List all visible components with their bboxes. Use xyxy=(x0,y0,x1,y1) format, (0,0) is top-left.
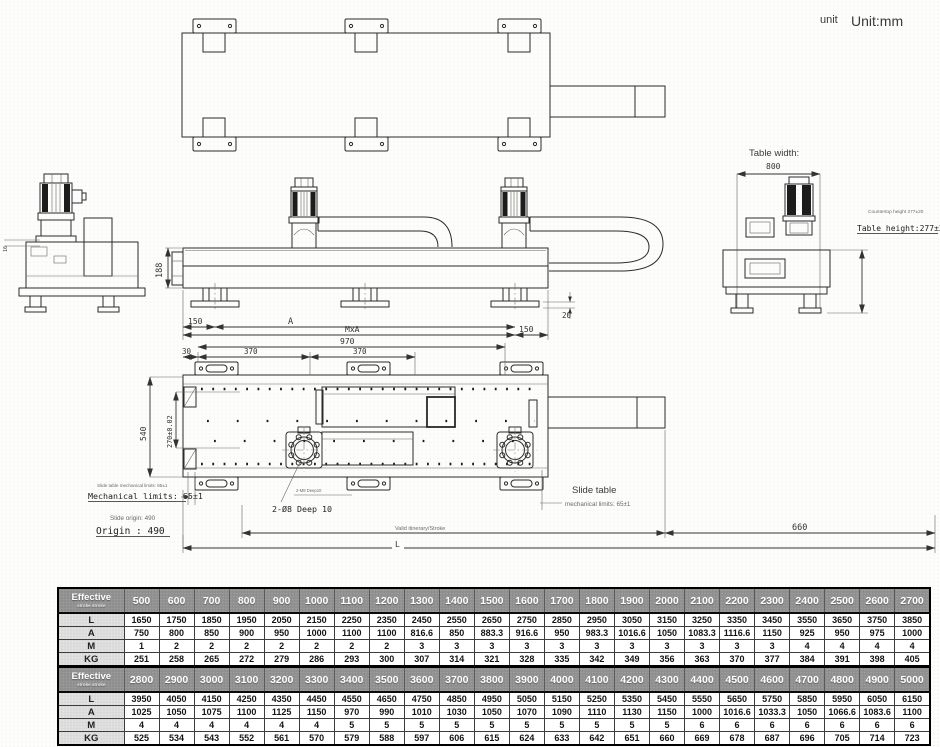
spec-cell: 370 xyxy=(720,653,755,667)
spec-cell: 405 xyxy=(895,653,930,667)
spec-cell: 615 xyxy=(474,732,509,746)
spec-cell: 588 xyxy=(369,732,404,746)
spec-cell: 5 xyxy=(369,719,404,732)
spec-cell: 4750 xyxy=(404,692,439,706)
spec-cell: 2550 xyxy=(439,613,474,627)
spec-cell: 5250 xyxy=(579,692,614,706)
table-width-title: Table width: xyxy=(749,148,799,159)
spec-cell: 5 xyxy=(509,719,544,732)
spec-cell: 1850 xyxy=(194,613,229,627)
spec-cell: 398 xyxy=(860,653,895,667)
stroke-column-header: 3500 xyxy=(369,667,404,692)
spec-cell: 4 xyxy=(264,719,299,732)
spec-cell: 6 xyxy=(895,719,930,732)
spec-cell: 272 xyxy=(229,653,264,667)
stroke-column-header: 1100 xyxy=(334,588,369,613)
spec-cell: 5450 xyxy=(649,692,684,706)
dim-16: 16 xyxy=(3,246,9,252)
spec-cell: 363 xyxy=(685,653,720,667)
stroke-column-header: 4200 xyxy=(614,667,649,692)
spec-cell: 1050 xyxy=(474,706,509,719)
spec-cell: 1100 xyxy=(895,706,930,719)
spec-cell: 300 xyxy=(369,653,404,667)
spec-cell: 356 xyxy=(649,653,684,667)
spec-cell: 678 xyxy=(720,732,755,746)
spec-cell: 1075 xyxy=(194,706,229,719)
stroke-column-header: 2400 xyxy=(790,588,825,613)
stroke-column-header: 500 xyxy=(124,588,159,613)
stroke-column-header: 1700 xyxy=(544,588,579,613)
stroke-column-header: 2700 xyxy=(895,588,930,613)
dim-370-2: 370 xyxy=(353,347,367,356)
motor-2 xyxy=(499,178,529,248)
stroke-column-header: 1900 xyxy=(614,588,649,613)
dim-660: 660 xyxy=(792,523,807,533)
spec-cell: 307 xyxy=(404,653,439,667)
stroke-column-header: 700 xyxy=(194,588,229,613)
spec-cell: 3 xyxy=(509,640,544,653)
stroke-column-header: 4300 xyxy=(649,667,684,692)
dim-L: L xyxy=(395,540,400,549)
stroke-column-header: 4500 xyxy=(720,667,755,692)
stroke-column-header: 3000 xyxy=(194,667,229,692)
spec-row-kg: KG52553454355256157057958859760661562463… xyxy=(58,732,930,746)
spec-cell: 1150 xyxy=(755,627,790,640)
stroke-column-header: 800 xyxy=(229,588,264,613)
spec-cell: 5850 xyxy=(790,692,825,706)
spec-cell: 328 xyxy=(509,653,544,667)
spec-cell: 3650 xyxy=(825,613,860,627)
spec-cell: 349 xyxy=(614,653,649,667)
row-label: KG xyxy=(58,732,124,746)
hole-callout-small-label: 2-M8 Deep10 xyxy=(296,488,322,493)
spec-cell: 2250 xyxy=(334,613,369,627)
stroke-column-header: 2500 xyxy=(825,588,860,613)
spec-cell: 3 xyxy=(474,640,509,653)
spec-cell: 6 xyxy=(825,719,860,732)
spec-cell: 990 xyxy=(369,706,404,719)
stroke-column-header: 2200 xyxy=(720,588,755,613)
stroke-column-header: 4700 xyxy=(790,667,825,692)
spec-cell: 1050 xyxy=(159,706,194,719)
spec-cell: 1000 xyxy=(299,627,334,640)
dim-150-left: 150 xyxy=(188,317,203,326)
spec-cell: 642 xyxy=(579,732,614,746)
spec-cell: 5 xyxy=(579,719,614,732)
spec-cell: 4 xyxy=(860,640,895,653)
effective-stroke-header: Effectivestroke stroke xyxy=(58,667,124,692)
stroke-column-header: 3400 xyxy=(334,667,369,692)
dim-970: 970 xyxy=(340,337,355,346)
stroke-column-header: 3600 xyxy=(404,667,439,692)
spec-cell: 5350 xyxy=(614,692,649,706)
dim-20: 20 xyxy=(562,311,572,320)
spec-cell: 950 xyxy=(825,627,860,640)
spec-cell: 279 xyxy=(264,653,299,667)
spec-cell: 3950 xyxy=(124,692,159,706)
spec-row-a: A102510501075110011251150970990101010301… xyxy=(58,706,930,719)
spec-cell: 5 xyxy=(474,719,509,732)
table-width-value: 800 xyxy=(766,162,781,171)
motor-1 xyxy=(289,178,319,248)
spec-cell: 1083.6 xyxy=(860,706,895,719)
spec-cell: 1100 xyxy=(334,627,369,640)
spec-cell: 1000 xyxy=(895,627,930,640)
stroke-column-header: 1600 xyxy=(509,588,544,613)
spec-cell: 377 xyxy=(755,653,790,667)
slide-table-limits-note: mechanical limits: 65±1 xyxy=(565,501,631,508)
dim-150-right: 150 xyxy=(519,325,534,334)
spec-cell: 1100 xyxy=(229,706,264,719)
stroke-column-header: 3900 xyxy=(509,667,544,692)
spec-cell: 4 xyxy=(299,719,334,732)
spec-cell: 4250 xyxy=(229,692,264,706)
spec-cell: 3450 xyxy=(755,613,790,627)
hole-callouts: 2-Ø8 Deep 10 2-M8 Deep10 xyxy=(272,458,352,514)
spec-cell: 321 xyxy=(474,653,509,667)
spec-cell: 5650 xyxy=(720,692,755,706)
spec-cell: 687 xyxy=(755,732,790,746)
spec-cell: 1110 xyxy=(579,706,614,719)
spec-cell: 1070 xyxy=(509,706,544,719)
stroke-column-header: 3300 xyxy=(299,667,334,692)
stroke-column-header: 2300 xyxy=(755,588,790,613)
dim-370-1: 370 xyxy=(244,347,258,356)
spec-row-m: M44444455555555556666666 xyxy=(58,719,930,732)
spec-cell: 850 xyxy=(439,627,474,640)
stroke-column-header: 4000 xyxy=(544,667,579,692)
spec-cell: 3 xyxy=(404,640,439,653)
drawing-canvas: unit Unit:mm xyxy=(0,0,940,585)
left-side-view: 16 xyxy=(3,174,145,312)
dim-188: 188 xyxy=(155,263,165,278)
spec-cell: 1030 xyxy=(439,706,474,719)
stroke-column-header: 2100 xyxy=(685,588,720,613)
spec-cell: 5950 xyxy=(825,692,860,706)
hole-callout-label: 2-Ø8 Deep 10 xyxy=(272,504,332,514)
spec-cell: 3 xyxy=(720,640,755,653)
spec-cell: 2050 xyxy=(264,613,299,627)
stroke-column-header: 3100 xyxy=(229,667,264,692)
spec-cell: 6 xyxy=(790,719,825,732)
spec-cell: 2450 xyxy=(404,613,439,627)
stroke-column-header: 1300 xyxy=(404,588,439,613)
spec-cell: 391 xyxy=(825,653,860,667)
stroke-column-header: 4100 xyxy=(579,667,614,692)
stroke-column-header: 2900 xyxy=(159,667,194,692)
spec-cell: 3 xyxy=(439,640,474,653)
spec-cell: 286 xyxy=(299,653,334,667)
spec-cell: 4350 xyxy=(264,692,299,706)
slide-limits-small-note: Slide table mechanical limits: 65±1 xyxy=(97,483,168,488)
spec-cell: 265 xyxy=(194,653,229,667)
spec-cell: 1050 xyxy=(790,706,825,719)
row-label: L xyxy=(58,613,124,627)
spec-cell: 975 xyxy=(860,627,895,640)
table-height-label: Table height:277±20 xyxy=(857,224,940,233)
spec-table-1: Effectivestroke stroke500600700800900100… xyxy=(57,587,931,667)
dim-A: A xyxy=(288,317,293,327)
spec-cell: 597 xyxy=(404,732,439,746)
spec-cell: 1050 xyxy=(649,627,684,640)
spec-cell: 2 xyxy=(229,640,264,653)
spec-cell: 4950 xyxy=(474,692,509,706)
spec-cell: 1000 xyxy=(685,706,720,719)
spec-cell: 561 xyxy=(264,732,299,746)
spec-row-m: M12222222333333333334444 xyxy=(58,640,930,653)
spec-cell: 4 xyxy=(159,719,194,732)
cable-carrier-1 xyxy=(318,217,452,247)
origin-label: Origin : 490 xyxy=(96,526,165,537)
spec-cell: 5 xyxy=(439,719,474,732)
spec-cell: 4050 xyxy=(159,692,194,706)
spec-cell: 1150 xyxy=(649,706,684,719)
spec-table-2: Effectivestroke stroke280029003000310032… xyxy=(57,666,931,746)
valid-stroke-label: Valid itinerary/Stroke xyxy=(395,526,445,532)
spec-cell: 3 xyxy=(755,640,790,653)
spec-cell: 5750 xyxy=(755,692,790,706)
slide-origin-small-note: Slide origin: 490 xyxy=(110,515,156,522)
spec-cell: 6 xyxy=(720,719,755,732)
stroke-column-header: 2600 xyxy=(860,588,895,613)
spec-cell: 251 xyxy=(124,653,159,667)
spec-cell: 5 xyxy=(544,719,579,732)
row-label: M xyxy=(58,719,124,732)
slide-table-label: Slide table xyxy=(572,485,616,496)
stroke-column-header: 4900 xyxy=(860,667,895,692)
spec-cell: 1090 xyxy=(544,706,579,719)
spec-cell: 1750 xyxy=(159,613,194,627)
row-label: M xyxy=(58,640,124,653)
spec-cell: 624 xyxy=(509,732,544,746)
spec-cell: 6150 xyxy=(895,692,930,706)
spec-cell: 2 xyxy=(159,640,194,653)
spec-cell: 1033.3 xyxy=(755,706,790,719)
spec-cell: 816.6 xyxy=(404,627,439,640)
spec-cell: 669 xyxy=(685,732,720,746)
spec-cell: 4 xyxy=(229,719,264,732)
spec-cell: 696 xyxy=(790,732,825,746)
spec-cell: 750 xyxy=(124,627,159,640)
stroke-column-header: 1000 xyxy=(299,588,334,613)
spec-cell: 3 xyxy=(579,640,614,653)
stroke-column-header: 1800 xyxy=(579,588,614,613)
spec-cell: 950 xyxy=(544,627,579,640)
feet xyxy=(191,283,539,312)
spec-cell: 552 xyxy=(229,732,264,746)
stroke-column-header: 5000 xyxy=(895,667,930,692)
spec-cell: 2 xyxy=(299,640,334,653)
bottom-view-left-dims: 540 270±0.02 xyxy=(139,377,240,477)
spec-cell: 3050 xyxy=(614,613,649,627)
spec-cell: 6050 xyxy=(860,692,895,706)
spec-cell: 633 xyxy=(544,732,579,746)
spec-cell: 3850 xyxy=(895,613,930,627)
spec-cell: 1100 xyxy=(369,627,404,640)
spec-cell: 900 xyxy=(229,627,264,640)
effective-stroke-header: Effectivestroke stroke xyxy=(58,588,124,613)
spec-cell: 883.3 xyxy=(474,627,509,640)
spec-cell: 925 xyxy=(790,627,825,640)
dim-270: 270±0.02 xyxy=(166,415,174,448)
countertop-height-note: Countertop height 277±20 xyxy=(868,209,924,215)
spec-cell: 5 xyxy=(334,719,369,732)
spec-cell: 2650 xyxy=(474,613,509,627)
spec-cell: 3150 xyxy=(649,613,684,627)
spec-cell: 2850 xyxy=(544,613,579,627)
spec-cell: 384 xyxy=(790,653,825,667)
unit-label: Unit:mm xyxy=(851,13,903,29)
spec-cell: 6 xyxy=(755,719,790,732)
spec-cell: 3 xyxy=(649,640,684,653)
spec-cell: 1016.6 xyxy=(720,706,755,719)
spec-cell: 570 xyxy=(299,732,334,746)
spec-cell: 525 xyxy=(124,732,159,746)
right-annotations: Slide table mechanical limits: 65±1 xyxy=(540,470,631,510)
spec-cell: 4150 xyxy=(194,692,229,706)
spec-cell: 660 xyxy=(649,732,684,746)
dim-MxA: MxA xyxy=(345,325,360,334)
spec-cell: 4850 xyxy=(439,692,474,706)
spec-row-l: L395040504150425043504450455046504750485… xyxy=(58,692,930,706)
left-annotations: Slide table mechanical limits: 65±1 Mech… xyxy=(88,472,203,548)
spec-cell: 4 xyxy=(825,640,860,653)
spec-cell: 723 xyxy=(895,732,930,746)
bottom-plan-view: 970 30 370 370 540 270±0.02 Slide table … xyxy=(88,337,935,553)
spec-cell: 970 xyxy=(334,706,369,719)
spec-cell: 1130 xyxy=(614,706,649,719)
spec-cell: 2 xyxy=(194,640,229,653)
spec-cell: 5550 xyxy=(685,692,720,706)
spec-cell: 4 xyxy=(895,640,930,653)
spec-row-l: L165017501850195020502150225023502450255… xyxy=(58,613,930,627)
spec-cell: 5050 xyxy=(509,692,544,706)
spec-cell: 1125 xyxy=(264,706,299,719)
spec-cell: 1116.6 xyxy=(720,627,755,640)
mechanical-limits-label: Mechanical limits: 65±1 xyxy=(88,491,203,501)
spec-cell: 1650 xyxy=(124,613,159,627)
spec-cell: 983.3 xyxy=(579,627,614,640)
spec-cell: 2 xyxy=(334,640,369,653)
spec-cell: 543 xyxy=(194,732,229,746)
right-side-view: Table width: 800 Countertop height 277±2… xyxy=(723,148,940,313)
spec-cell: 3550 xyxy=(790,613,825,627)
spec-cell: 1 xyxy=(124,640,159,653)
spec-cell: 342 xyxy=(579,653,614,667)
row-label: A xyxy=(58,706,124,719)
spec-cell: 1066.6 xyxy=(825,706,860,719)
stroke-column-header: 3200 xyxy=(264,667,299,692)
spec-cell: 2 xyxy=(264,640,299,653)
stroke-column-header: 3800 xyxy=(474,667,509,692)
spec-cell: 3 xyxy=(685,640,720,653)
cable-carrier-2 xyxy=(530,217,663,271)
stroke-column-header: 1500 xyxy=(474,588,509,613)
spec-cell: 6 xyxy=(860,719,895,732)
engineering-drawing-page: unit Unit:mm xyxy=(0,0,940,747)
stroke-column-header: 600 xyxy=(159,588,194,613)
spec-cell: 3250 xyxy=(685,613,720,627)
spec-cell: 3350 xyxy=(720,613,755,627)
spec-cell: 714 xyxy=(860,732,895,746)
spec-cell: 800 xyxy=(159,627,194,640)
spec-cell: 4550 xyxy=(334,692,369,706)
spec-cell: 4 xyxy=(790,640,825,653)
spec-cell: 5 xyxy=(649,719,684,732)
spec-cell: 4 xyxy=(194,719,229,732)
spec-row-a: A750800850900950100011001100816.6850883.… xyxy=(58,627,930,640)
spec-cell: 2 xyxy=(369,640,404,653)
spec-cell: 5150 xyxy=(544,692,579,706)
spec-cell: 258 xyxy=(159,653,194,667)
spec-cell: 606 xyxy=(439,732,474,746)
spec-cell: 1010 xyxy=(404,706,439,719)
spec-cell: 1016.6 xyxy=(614,627,649,640)
spec-cell: 950 xyxy=(264,627,299,640)
stroke-column-header: 4400 xyxy=(685,667,720,692)
spec-cell: 293 xyxy=(334,653,369,667)
spec-cell: 4 xyxy=(124,719,159,732)
dim-30: 30 xyxy=(182,347,192,356)
spec-cell: 3 xyxy=(544,640,579,653)
spec-cell: 4450 xyxy=(299,692,334,706)
spec-cell: 2350 xyxy=(369,613,404,627)
spec-cell: 534 xyxy=(159,732,194,746)
stroke-column-header: 2000 xyxy=(649,588,684,613)
row-label: KG xyxy=(58,653,124,667)
spec-cell: 579 xyxy=(334,732,369,746)
stroke-column-header: 1400 xyxy=(439,588,474,613)
spec-cell: 335 xyxy=(544,653,579,667)
row-label: L xyxy=(58,692,124,706)
stroke-column-header: 4800 xyxy=(825,667,860,692)
stroke-column-header: 4600 xyxy=(755,667,790,692)
spec-cell: 1950 xyxy=(229,613,264,627)
spec-cell: 5 xyxy=(614,719,649,732)
spec-cell: 314 xyxy=(439,653,474,667)
spec-cell: 1025 xyxy=(124,706,159,719)
spec-cell: 2150 xyxy=(299,613,334,627)
row-label: A xyxy=(58,627,124,640)
top-view xyxy=(182,19,665,151)
spec-cell: 4650 xyxy=(369,692,404,706)
top-view-arm xyxy=(550,86,665,117)
spec-cell: 1150 xyxy=(299,706,334,719)
spec-cell: 916.6 xyxy=(509,627,544,640)
spec-cell: 705 xyxy=(825,732,860,746)
dim-540: 540 xyxy=(139,426,148,441)
stroke-column-header: 2800 xyxy=(124,667,159,692)
unit-label-small: unit xyxy=(820,14,838,26)
spec-cell: 651 xyxy=(614,732,649,746)
spec-cell: 5 xyxy=(404,719,439,732)
spec-cell: 850 xyxy=(194,627,229,640)
spec-cell: 3750 xyxy=(860,613,895,627)
stroke-column-header: 3700 xyxy=(439,667,474,692)
spec-row-kg: KG25125826527227928629330030731432132833… xyxy=(58,653,930,667)
spec-cell: 6 xyxy=(685,719,720,732)
bottom-view-arm xyxy=(548,397,665,428)
spec-cell: 2950 xyxy=(579,613,614,627)
stroke-column-header: 1200 xyxy=(369,588,404,613)
spec-cell: 1083.3 xyxy=(685,627,720,640)
spec-cell: 2750 xyxy=(509,613,544,627)
spec-cell: 3 xyxy=(614,640,649,653)
front-view: 188 150 A MxA 150 20 xyxy=(155,178,663,340)
stroke-column-header: 900 xyxy=(264,588,299,613)
